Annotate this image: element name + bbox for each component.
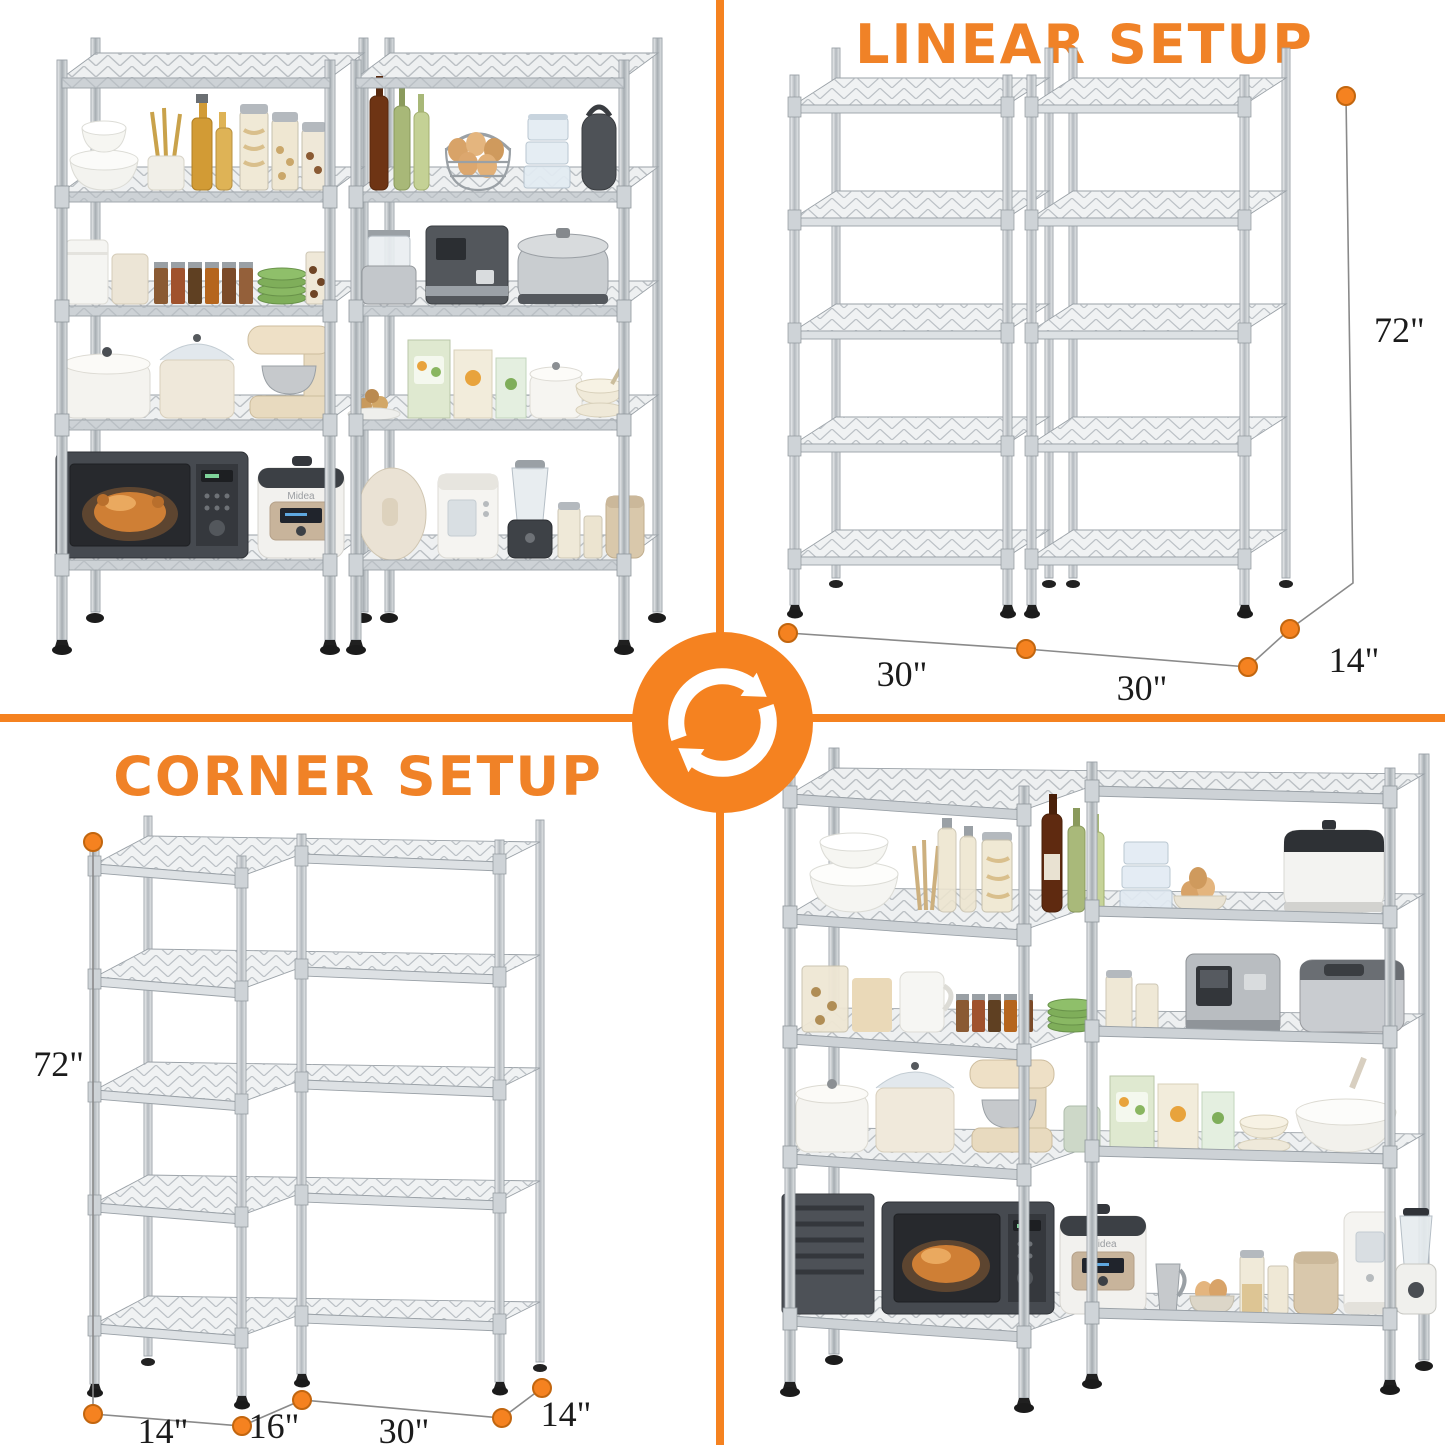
linear-depth-label: 14" — [1329, 640, 1380, 680]
leveling-feet — [780, 1374, 1400, 1413]
steamer-pot — [160, 334, 234, 418]
linear-width-left-label: 30" — [877, 654, 928, 694]
large-white-bowl — [1296, 1058, 1396, 1152]
wine-bottles — [370, 76, 429, 190]
rotate-sync-icon — [630, 630, 815, 815]
loaded-corner-shelf-photo: Midea — [724, 724, 1445, 1445]
cream-bowl-stack — [576, 366, 624, 417]
beige-crock — [112, 254, 148, 304]
shelf-levels — [95, 836, 540, 1345]
cereal-boxes — [408, 340, 526, 418]
front-posts — [790, 75, 1249, 605]
linear-width-right-label: 30" — [1117, 668, 1168, 708]
espresso-machine-silver — [1186, 954, 1280, 1032]
linear-height-label: 72" — [1374, 310, 1425, 350]
linear-shelf-photo-graphic: Midea — [0, 0, 716, 712]
leveling-feet — [787, 605, 1253, 619]
green-bowl-stack — [258, 268, 306, 304]
food-boxes — [1110, 1076, 1234, 1152]
corner-wing-depth-label: 14" — [138, 1411, 189, 1445]
stand-mixer — [248, 326, 332, 418]
white-jug — [900, 972, 951, 1032]
white-multicooker: Midea — [1060, 1204, 1146, 1314]
black-kettle — [582, 107, 616, 190]
wooden-forks — [914, 840, 938, 910]
corner-run-width-label: 30" — [379, 1411, 430, 1445]
white-pot — [530, 362, 582, 418]
large-bowl-stack — [810, 833, 898, 912]
cream-stand-mixer — [970, 1060, 1054, 1152]
loaded-linear-shelf-photo: Midea — [0, 0, 716, 712]
appliance-brand-label: Midea — [287, 491, 315, 502]
corner-run-depth-label: 14" — [541, 1394, 592, 1434]
beige-crock — [1294, 1252, 1338, 1314]
corner-height-label: 72" — [33, 1044, 84, 1084]
leveling-feet — [52, 640, 634, 655]
corner-shelf-photo-graphic: Midea — [724, 724, 1445, 1445]
microwave — [56, 452, 248, 558]
rice-cooker-silver — [518, 228, 608, 304]
oil-bottles — [192, 94, 232, 190]
pasta-jars — [240, 104, 326, 190]
corner-wing-width-label: 16" — [249, 1406, 300, 1445]
corner-setup-drawing: 72" 14" 16" 30" 14" — [0, 724, 716, 1445]
coffee-maker — [438, 474, 498, 558]
product-infographic: Midea — [0, 0, 1445, 1445]
glass-container-stack — [524, 114, 570, 188]
small-jars — [558, 502, 602, 558]
espresso-machine — [426, 226, 508, 304]
dimension-markers: 30" 30" 14" 72" — [779, 87, 1425, 708]
storage-container-stack — [1120, 842, 1172, 912]
white-round-pot — [796, 1079, 868, 1152]
air-fryer-egg — [358, 468, 426, 560]
blender — [508, 460, 552, 558]
food-processor — [362, 230, 416, 304]
corner-setup-quadrant: CORNER SETUP — [0, 724, 716, 1445]
clear-jars — [1106, 970, 1158, 1032]
vented-cabinet — [782, 1194, 874, 1314]
dimension-markers: 72" 14" 16" 30" 14" — [33, 833, 591, 1445]
white-rice-cooker — [1284, 820, 1384, 912]
white-bowl-stack — [70, 121, 138, 190]
egg-bowl — [1174, 867, 1226, 912]
utensil-crock — [148, 108, 184, 190]
linear-setup-drawing: 30" 30" 14" 72" — [724, 0, 1445, 712]
red-wine-bottle — [1042, 794, 1062, 912]
linear-setup-quadrant: LINEAR SETUP — [724, 0, 1445, 712]
glass-canisters — [802, 966, 892, 1032]
egg-bowl-small — [1190, 1279, 1234, 1314]
white-blender — [1396, 1208, 1436, 1314]
shelf-levels — [794, 78, 1286, 565]
dutch-oven — [64, 347, 150, 418]
grain-jars — [1240, 1250, 1288, 1314]
glass-lid-steamer — [876, 1062, 954, 1152]
pasta-jar — [982, 832, 1012, 912]
white-canister — [66, 240, 108, 304]
